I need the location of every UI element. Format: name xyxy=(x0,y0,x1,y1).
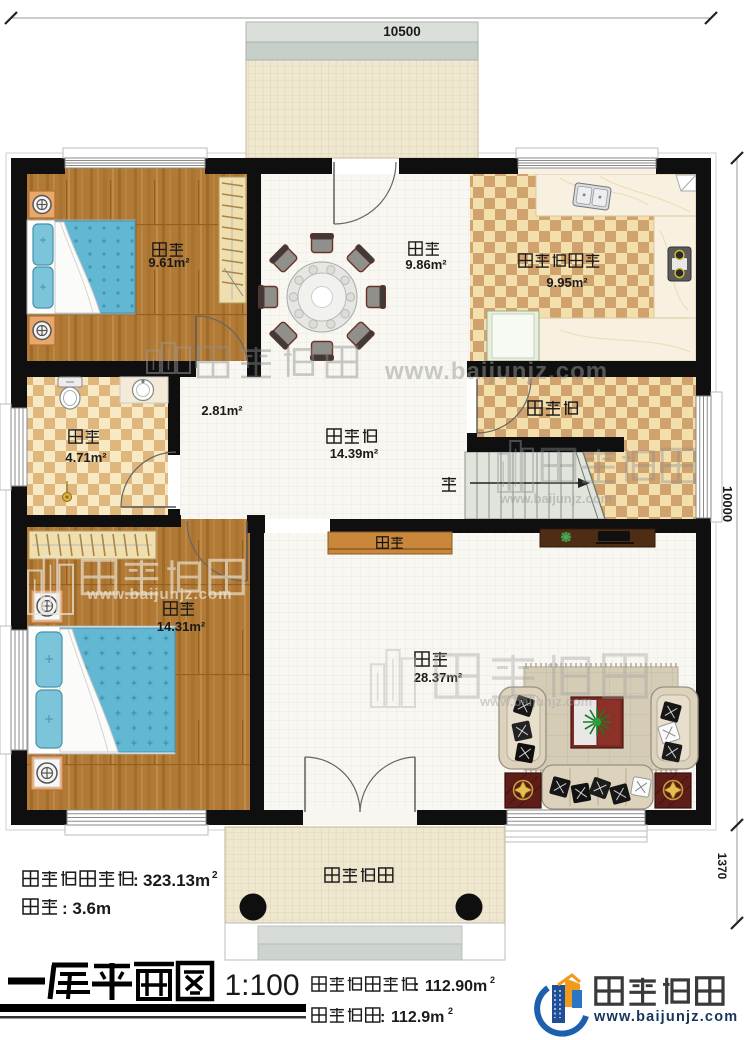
svg-text:9.86m²: 9.86m² xyxy=(405,257,447,272)
svg-text:4.71m²: 4.71m² xyxy=(65,450,107,465)
svg-text:112.9m: 112.9m xyxy=(391,1009,444,1026)
svg-text::: : xyxy=(133,871,139,890)
svg-text:1:100: 1:100 xyxy=(224,969,299,1002)
svg-text:www.baijunjz.com: www.baijunjz.com xyxy=(384,358,608,385)
svg-text:www.baijunjz.com: www.baijunjz.com xyxy=(593,1009,738,1025)
svg-text:1370: 1370 xyxy=(715,853,729,880)
svg-text:2.81m²: 2.81m² xyxy=(201,403,243,418)
svg-text:9.61m²: 9.61m² xyxy=(148,255,190,270)
svg-text:112.90m: 112.90m xyxy=(425,978,487,995)
svg-text::: : xyxy=(380,1009,385,1026)
svg-text:10000: 10000 xyxy=(720,486,735,522)
svg-text:10500: 10500 xyxy=(383,24,421,39)
svg-text:www.baijunjz.com: www.baijunjz.com xyxy=(499,491,612,506)
svg-text:www.baijunjz.com: www.baijunjz.com xyxy=(479,694,592,709)
svg-text:9.95m²: 9.95m² xyxy=(546,275,588,290)
svg-text:14.39m²: 14.39m² xyxy=(330,446,379,461)
svg-text:2: 2 xyxy=(490,975,495,985)
svg-text:: 3.6m: : 3.6m xyxy=(62,899,111,918)
svg-text:2: 2 xyxy=(448,1006,453,1016)
svg-text:14.31m²: 14.31m² xyxy=(157,619,206,634)
svg-text:323.13m: 323.13m xyxy=(143,871,210,890)
svg-text::: : xyxy=(414,978,419,995)
svg-text:2: 2 xyxy=(212,870,218,881)
svg-text:www.baijunjz.com: www.baijunjz.com xyxy=(86,586,232,603)
